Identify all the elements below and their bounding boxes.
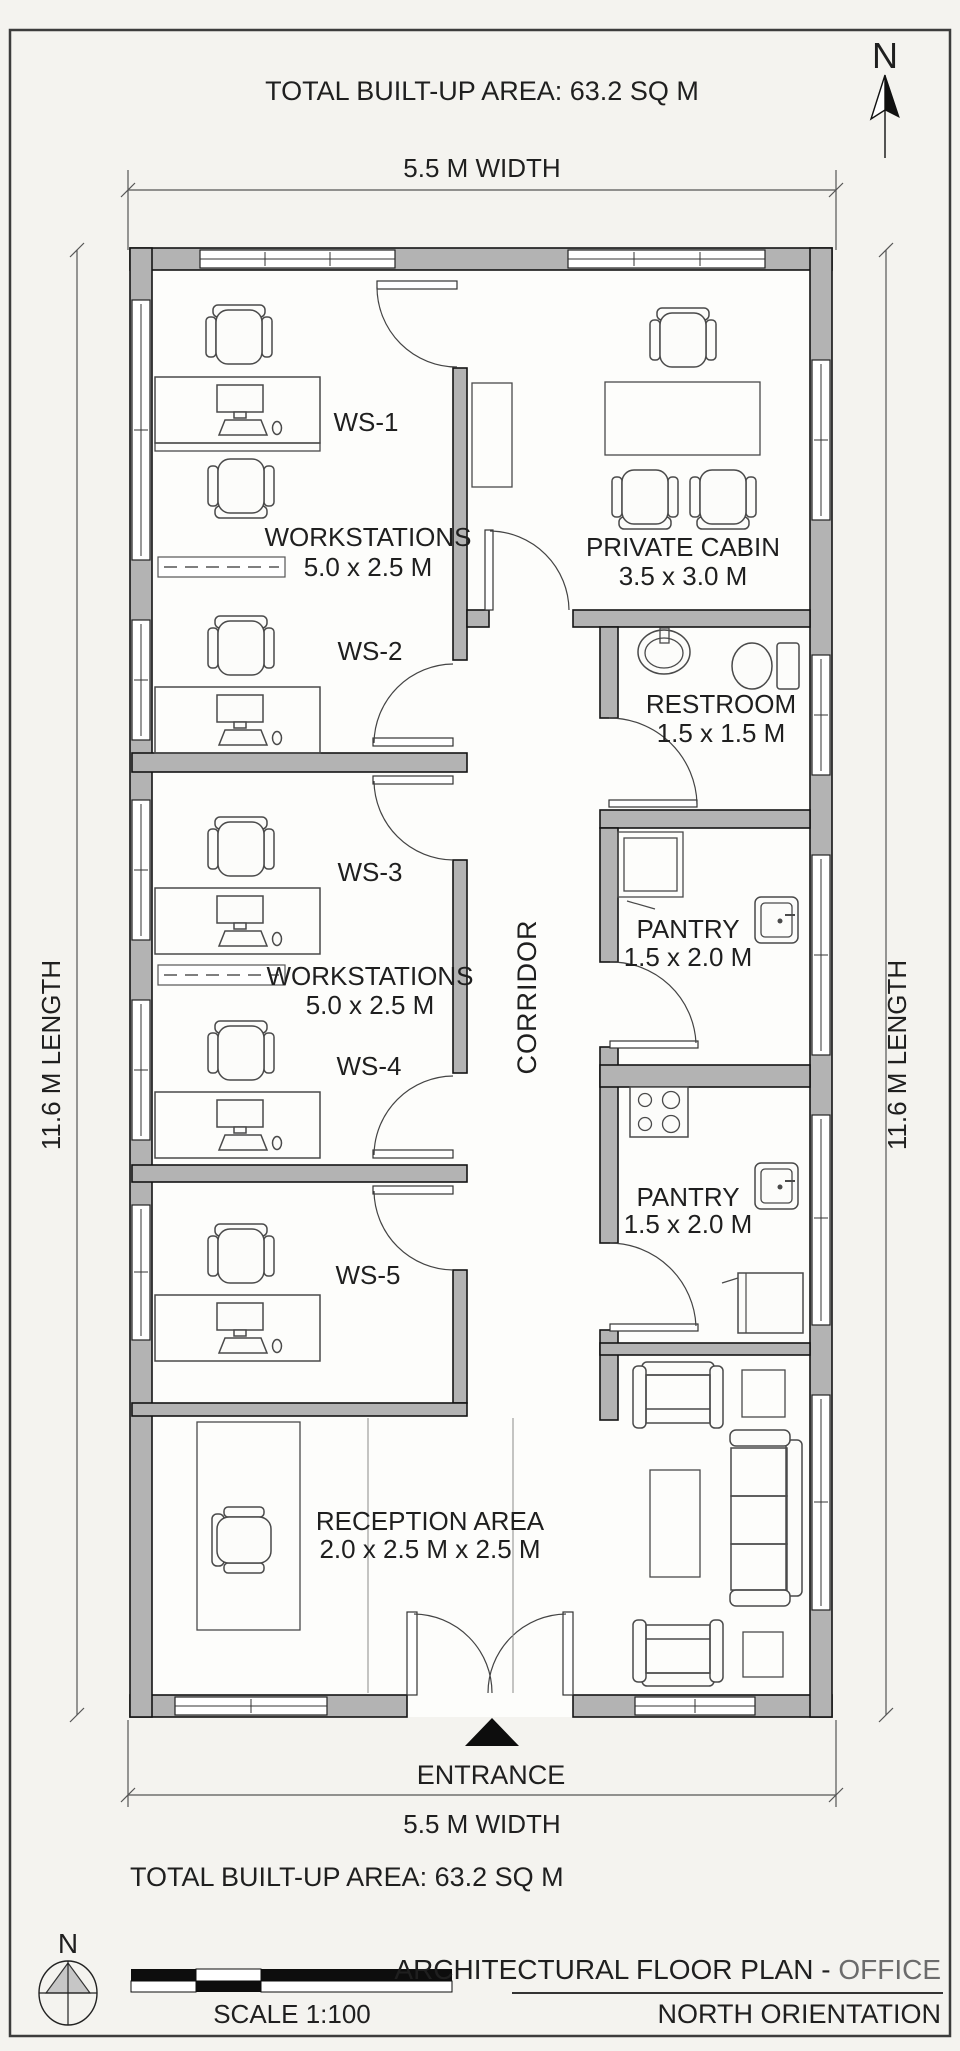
corridor-label: CORRIDOR — [512, 920, 542, 1075]
svg-text:5.5 M WIDTH: 5.5 M WIDTH — [403, 1809, 560, 1839]
pantry-lower-label: PANTRY — [636, 1182, 739, 1212]
ws3-label: WS-3 — [338, 857, 403, 887]
pantry-sink — [755, 1163, 798, 1209]
compass-icon: N — [39, 1928, 97, 2025]
ws1-ws2-partition — [158, 557, 285, 577]
pantry-upper-label: PANTRY — [636, 914, 739, 944]
ws2-label: WS-2 — [338, 636, 403, 666]
svg-text:N: N — [872, 35, 898, 76]
north-arrow-icon: N — [871, 35, 899, 158]
private-cabin-dim: 3.5 x 3.0 M — [619, 561, 748, 591]
svg-text:11.6 M LENGTH: 11.6 M LENGTH — [36, 960, 66, 1150]
toilet — [732, 643, 799, 689]
entrance-marker: ENTRANCE — [417, 1718, 566, 1790]
dimension-left-length: 11.6 M LENGTH — [36, 243, 84, 1722]
svg-text:N: N — [58, 1928, 78, 1959]
dimension-top-width: 5.5 M WIDTH — [121, 153, 843, 250]
workstations-lower-dim: 5.0 x 2.5 M — [306, 990, 435, 1020]
restroom-dim: 1.5 x 1.5 M — [657, 718, 786, 748]
ws1-label: WS-1 — [334, 407, 399, 437]
reception-dim: 2.0 x 2.5 M x 2.5 M — [319, 1534, 540, 1564]
pantry-upper-dim: 1.5 x 2.0 M — [624, 942, 753, 972]
title-block: ARCHITECTURAL FLOOR PLAN - OFFICE NORTH … — [394, 1954, 943, 2029]
stove — [630, 1087, 688, 1137]
drawing-subtitle: NORTH ORIENTATION — [658, 1999, 942, 2029]
private-cabin-label: PRIVATE CABIN — [586, 532, 780, 562]
scale-label: SCALE 1:100 — [213, 1999, 371, 2029]
bottom-total-area-label: TOTAL BUILT-UP AREA: 63.2 SQ M — [130, 1862, 564, 1892]
entrance-label: ENTRANCE — [417, 1760, 566, 1790]
pantry-sink — [755, 897, 798, 943]
workstations-lower-label: WORKSTATIONS — [266, 961, 473, 991]
drawing-sheet: TOTAL BUILT-UP AREA: 63.2 SQ M N 5.5 M W… — [0, 0, 960, 2051]
reception-label: RECEPTION AREA — [316, 1506, 545, 1536]
svg-text:5.5 M WIDTH: 5.5 M WIDTH — [403, 153, 560, 183]
restroom-label: RESTROOM — [646, 689, 796, 719]
workstations-upper-label: WORKSTATIONS — [264, 522, 471, 552]
svg-text:11.6 M LENGTH: 11.6 M LENGTH — [882, 960, 912, 1150]
ws5-label: WS-5 — [336, 1260, 401, 1290]
floor-plan-drawing: TOTAL BUILT-UP AREA: 63.2 SQ M N 5.5 M W… — [0, 0, 960, 2051]
entrance-arrow-icon — [465, 1718, 519, 1746]
ws4-label: WS-4 — [337, 1051, 402, 1081]
pantry-lower-dim: 1.5 x 2.0 M — [624, 1209, 753, 1239]
dimension-right-length: 11.6 M LENGTH — [879, 243, 912, 1722]
workstations-upper-dim: 5.0 x 2.5 M — [304, 552, 433, 582]
drawing-title: ARCHITECTURAL FLOOR PLAN - OFFICE — [394, 1954, 941, 1985]
top-total-area-label: TOTAL BUILT-UP AREA: 63.2 SQ M — [265, 76, 699, 106]
